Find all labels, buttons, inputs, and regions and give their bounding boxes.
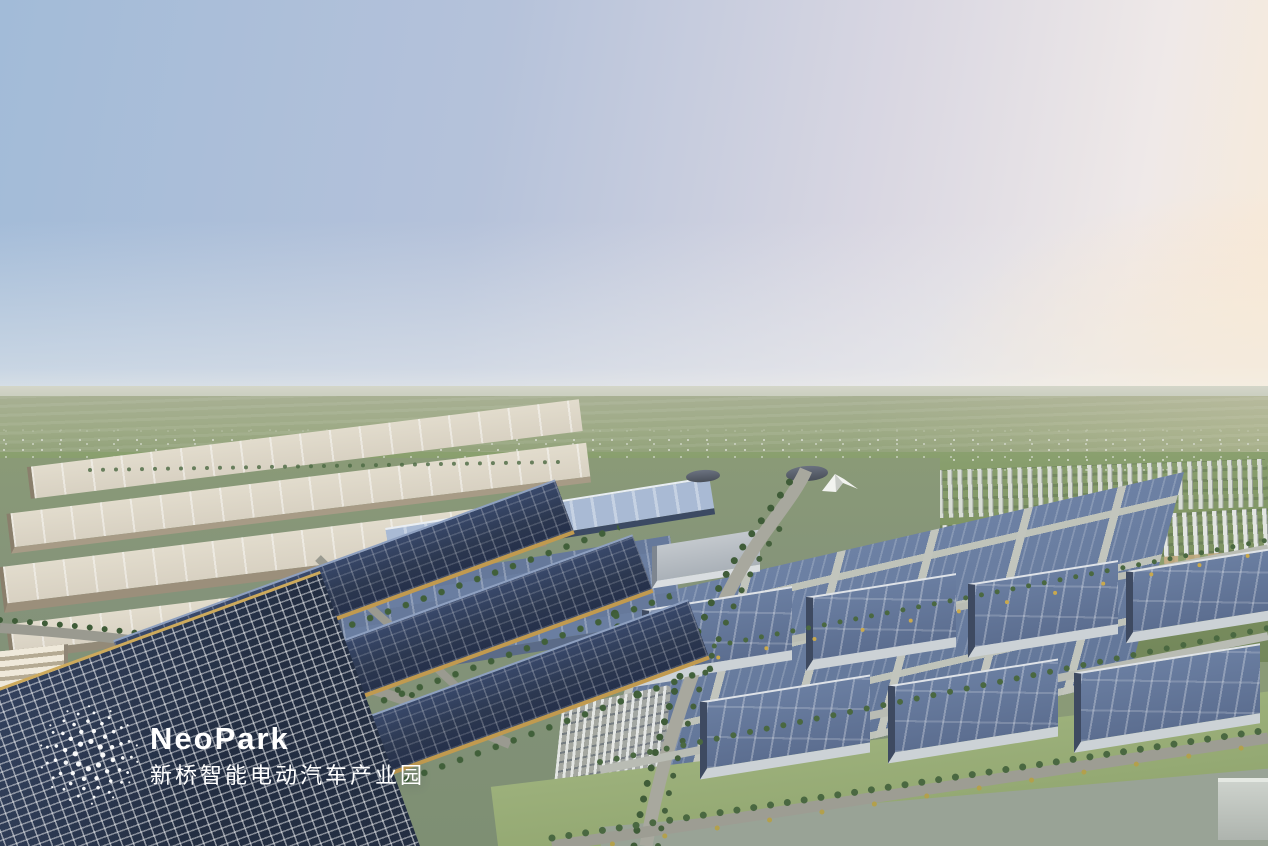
sky <box>0 0 1268 400</box>
grey-box-building <box>1218 778 1268 840</box>
neopark-logo: NeoPark 新桥智能电动汽车产业园 <box>36 702 425 808</box>
logo-text-block: NeoPark 新桥智能电动汽车产业园 <box>150 723 425 787</box>
white-tent-pavilion <box>820 472 860 494</box>
aerial-render-scene: NeoPark 新桥智能电动汽车产业园 <box>0 0 1268 846</box>
dotted-sphere-icon <box>36 702 142 808</box>
logo-subtitle-chinese: 新桥智能电动汽车产业园 <box>150 765 425 787</box>
logo-wordmark: NeoPark <box>150 723 425 754</box>
